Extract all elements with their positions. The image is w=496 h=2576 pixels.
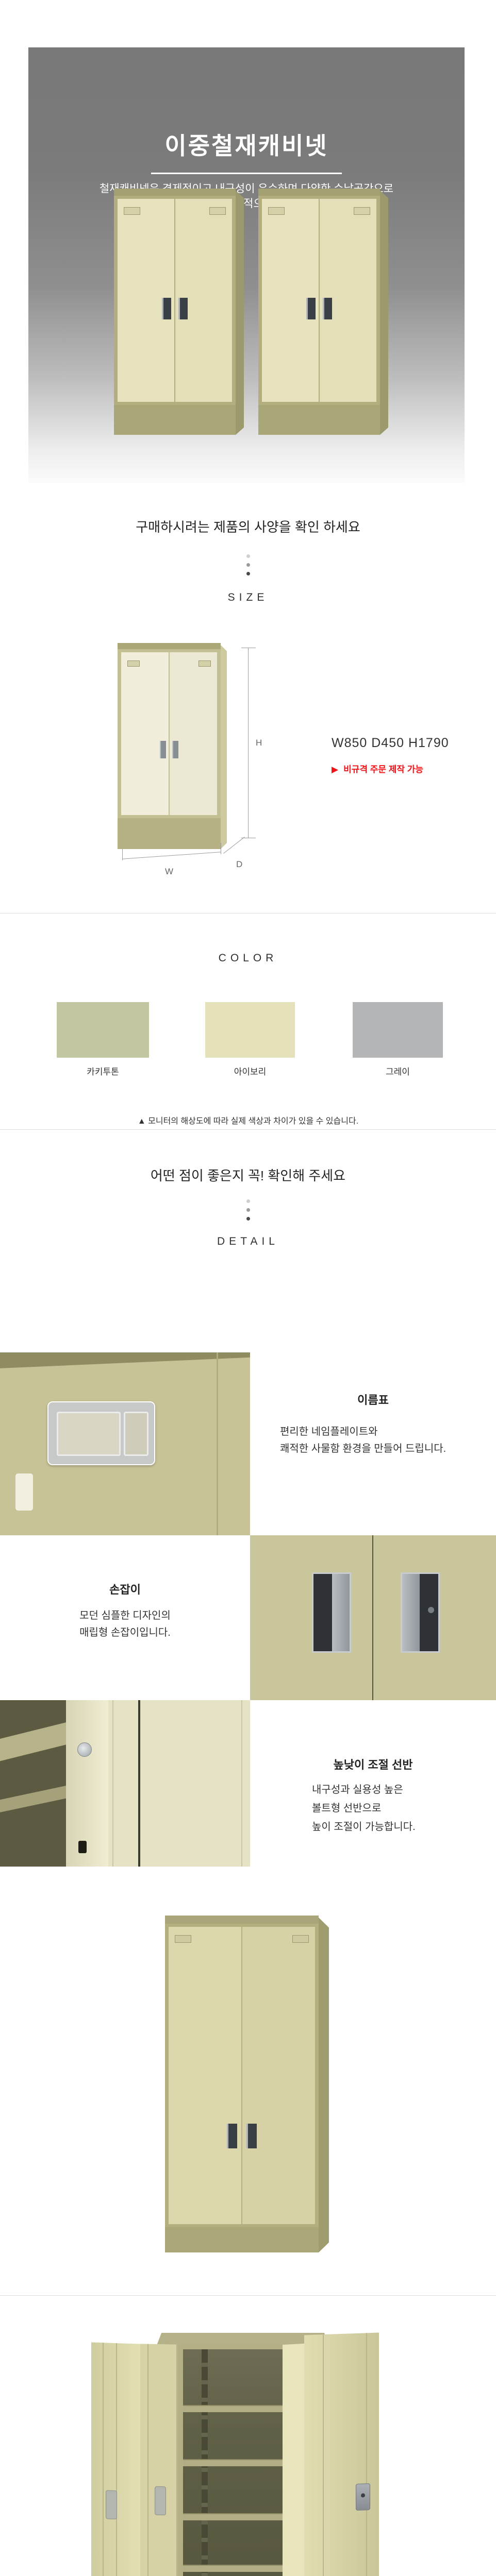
detail-prompt-text: 어떤 점이 좋은지 꼭! 확인해 주세요	[0, 1165, 496, 1184]
cabinet-base	[258, 405, 380, 435]
door-crease-line	[103, 2343, 104, 2576]
cabinet-frame	[114, 196, 236, 405]
feature-photo-shelf	[0, 1700, 250, 1867]
color-swatch-label: 아이보리	[205, 1064, 295, 1077]
cabinet-base	[165, 2227, 319, 2252]
cabinet-side-panel	[319, 1918, 329, 2252]
section-divider	[0, 1129, 496, 1130]
cabinet-door-right	[242, 1927, 315, 2224]
cabinet-door-left	[262, 199, 319, 402]
cabinet-top	[165, 1916, 319, 1924]
hero-banner: 이중철재캐비넷 철재캐비넷은 경제적이고 내구성이 우수하며 다양한 수납공간으…	[28, 47, 465, 483]
cabinet-frame	[118, 649, 221, 818]
width-dimension-label: W	[165, 867, 173, 877]
feature-text-line: 쾌적한 사물함 환경을 만들어 드립니다.	[280, 1440, 446, 1458]
section-divider	[0, 2295, 496, 2296]
vent-plate-icon	[354, 207, 370, 215]
cabinet-top	[118, 643, 221, 649]
cabinet-door-left	[118, 199, 174, 402]
keyhole-icon	[361, 2493, 365, 2497]
color-swatch-label: 카키투톤	[57, 1064, 149, 1077]
monitor-color-disclaimer: ▲ 모니터의 해상도에 따라 실제 색상과 차이가 있을 수 있습니다.	[0, 1114, 496, 1126]
open-cabinet-image	[90, 2329, 379, 2576]
recessed-handle-left	[312, 1572, 351, 1653]
cabinet-frame	[165, 1924, 319, 2227]
cabinet-frame	[258, 196, 380, 405]
cabinet-top-edge	[0, 1352, 250, 1368]
open-door-left-inner	[140, 2344, 178, 2576]
door-handle	[155, 2486, 166, 2515]
cabinet-door-left	[169, 1927, 241, 2224]
keyhole-icon	[428, 1607, 434, 1613]
cabinet-side-panel	[236, 191, 244, 435]
door-handle	[246, 2124, 257, 2148]
custom-order-note: ▶비규격 주문 제작 가능	[332, 762, 423, 775]
door-handle	[160, 741, 166, 758]
feature-text-line: 모던 심플한 디자인의	[0, 1607, 250, 1624]
feature-text-line: 볼트형 선반으로	[312, 1800, 381, 1817]
door-crease-line	[241, 1700, 242, 1867]
adjust-slot	[78, 1841, 87, 1853]
cabinet-side-panel	[380, 191, 388, 435]
door-handle	[106, 2490, 117, 2519]
door-edge-line	[138, 1700, 140, 1867]
door-handle	[172, 741, 178, 758]
section-title-size: SIZE	[0, 591, 496, 604]
vent-plate-icon	[124, 207, 140, 215]
section-title-detail: DETAIL	[0, 1235, 496, 1248]
dimension-tick	[221, 843, 221, 854]
feature-photo-nameplate	[0, 1352, 250, 1535]
product-detail-page: 이중철재캐비넷 철재캐비넷은 경제적이고 내구성이 우수하며 다양한 수납공간으…	[0, 0, 496, 2576]
size-diagram-cabinet	[118, 643, 221, 849]
door-crease-line	[366, 2333, 367, 2576]
door-crease-line	[116, 2343, 117, 2576]
feature-text-line: 매립형 손잡이입니다.	[0, 1624, 250, 1641]
nameplate-holder	[47, 1401, 155, 1465]
red-arrow-icon: ▶	[332, 765, 338, 774]
door-edge-line	[217, 1352, 218, 1535]
open-door-panel	[108, 1700, 250, 1867]
vent-plate-icon	[127, 660, 140, 667]
cabinet-door-right	[170, 652, 217, 815]
custom-order-note-text: 비규격 주문 제작 가능	[343, 765, 423, 774]
cabinet-door-left	[121, 652, 169, 815]
hero-cabinet-image-right	[258, 189, 380, 435]
feature-text-line: 높이 조절이 가능합니다.	[312, 1819, 416, 1836]
hero-cabinet-image-left	[114, 189, 236, 435]
dimension-tick	[122, 849, 123, 860]
hinge-tab	[15, 1473, 33, 1511]
open-door-right-inner	[283, 2344, 304, 2576]
feature-text-line: 편리한 네임플레이트와	[280, 1423, 378, 1440]
handle-metal-strip	[332, 1574, 350, 1651]
vent-plate-icon	[268, 207, 285, 215]
feature-title-nameplate: 이름표	[250, 1391, 496, 1408]
door-gap-line	[372, 1535, 373, 1700]
door-handle	[227, 2124, 237, 2148]
width-dimension-line	[122, 852, 221, 859]
door-crease-line	[112, 1700, 113, 1867]
door-handle	[162, 298, 171, 319]
handle-metal-strip	[402, 1574, 420, 1651]
height-dimension-label: H	[256, 738, 262, 748]
vent-plate-icon	[175, 1935, 191, 1943]
cabinet-door-right	[320, 199, 376, 402]
hero-description-line1: 철재캐비넷은 경제적이고 내구성이 우수하며 다양한 수납공간으로	[28, 181, 465, 196]
cabinet-door-right	[175, 199, 232, 402]
scroll-dots-icon	[0, 554, 496, 575]
vent-plate-icon	[292, 1935, 309, 1943]
vent-plate-icon	[209, 207, 226, 215]
open-door-right-outer	[304, 2332, 379, 2576]
color-swatch-khaki	[57, 1002, 149, 1058]
height-dimension-line	[248, 648, 249, 838]
section-title-color: COLOR	[0, 952, 496, 964]
depth-dimension-label: D	[236, 859, 242, 870]
cabinet-base	[114, 405, 236, 435]
hero-description-line2: 어떠한 사무환경에서도 실용적으로 사용하실 수 있습니다.	[28, 196, 465, 211]
dimension-tick	[241, 648, 256, 648]
color-swatch-label: 그레이	[353, 1064, 443, 1077]
door-frame-strip	[66, 1700, 108, 1867]
door-handle	[306, 298, 316, 319]
cabinet-top	[114, 189, 236, 196]
feature-title-handle: 손잡이	[0, 1581, 250, 1597]
open-door-left-outer	[91, 2342, 140, 2576]
cabinet-side-panel	[221, 645, 227, 849]
scroll-dots-icon	[0, 1199, 496, 1221]
feature-title-shelf: 높낮이 조절 선반	[250, 1756, 496, 1772]
color-swatch-ivory	[205, 1002, 295, 1058]
vent-plate-icon	[199, 660, 211, 667]
cabinet-base	[118, 818, 221, 849]
feature-photo-handle	[250, 1535, 496, 1700]
bolt-screw-icon	[77, 1742, 92, 1757]
spec-prompt-text: 구매하시려는 제품의 사양을 확인 하세요	[0, 517, 496, 536]
door-crease-line	[147, 2344, 148, 2576]
feature-text-line: 내구성과 실용성 높은	[312, 1782, 403, 1799]
page-title: 이중철재캐비넷	[28, 127, 465, 161]
nameplate-window-large	[57, 1412, 121, 1456]
door-handle	[178, 298, 188, 319]
closed-cabinet-image	[165, 1916, 319, 2252]
recessed-handle-right	[401, 1572, 440, 1653]
door-handle	[323, 298, 332, 319]
lock-handle	[356, 2483, 370, 2511]
title-divider	[151, 173, 342, 174]
product-dimensions-text: W850 D450 H1790	[332, 736, 449, 751]
color-swatch-gray	[353, 1002, 443, 1058]
cabinet-top	[258, 189, 380, 196]
section-divider	[0, 913, 496, 913]
nameplate-window-small	[124, 1412, 148, 1456]
door-crease-line	[323, 2334, 324, 2576]
